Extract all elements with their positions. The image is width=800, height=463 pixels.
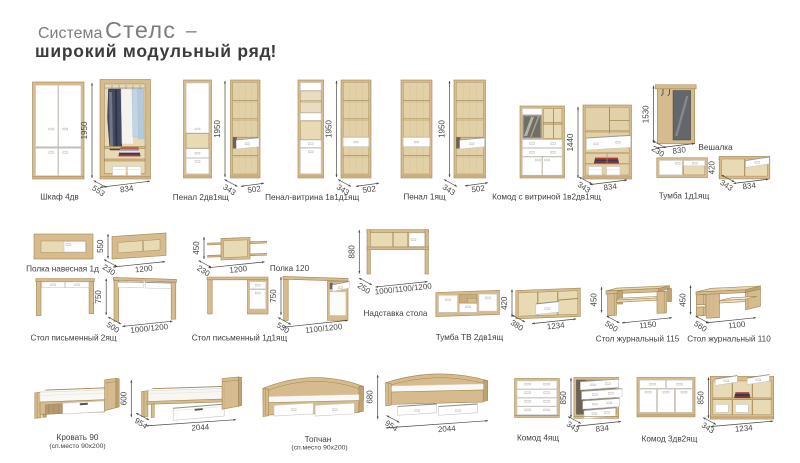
svg-text:834: 834 <box>742 181 757 192</box>
svg-text:954: 954 <box>133 416 150 431</box>
svg-text:450: 450 <box>679 293 688 307</box>
svg-text:880: 880 <box>347 245 356 259</box>
svg-text:834: 834 <box>120 184 135 195</box>
svg-text:2044: 2044 <box>191 422 210 432</box>
svg-text:502: 502 <box>471 184 486 195</box>
svg-text:Надставка стола: Надставка стола <box>364 309 428 318</box>
svg-text:680: 680 <box>366 390 375 404</box>
svg-text:1234: 1234 <box>546 321 565 332</box>
svg-text:Пенал 1ящ: Пенал 1ящ <box>403 193 446 202</box>
svg-text:!: ! <box>271 41 277 61</box>
svg-text:Топчан: Топчан <box>305 435 332 444</box>
svg-text:1950: 1950 <box>213 120 222 138</box>
svg-text:550: 550 <box>96 239 105 253</box>
svg-text:560: 560 <box>692 319 709 334</box>
svg-text:Комод 3дв2ящ: Комод 3дв2ящ <box>642 435 698 444</box>
svg-text:380: 380 <box>509 318 526 333</box>
svg-text:1100: 1100 <box>728 320 747 331</box>
svg-text:(сп.место 90х200): (сп.место 90х200) <box>291 445 347 452</box>
svg-text:230: 230 <box>101 262 118 277</box>
svg-text:Вешалка: Вешалка <box>698 143 733 152</box>
svg-text:Комод 4ящ: Комод 4ящ <box>517 434 559 443</box>
svg-text:1234: 1234 <box>735 423 754 434</box>
svg-text:834: 834 <box>595 423 610 433</box>
svg-text:420: 420 <box>500 296 509 310</box>
svg-text:560: 560 <box>603 319 620 334</box>
svg-text:2044: 2044 <box>438 424 457 434</box>
svg-text:1950: 1950 <box>325 120 334 138</box>
svg-text:850: 850 <box>697 391 706 405</box>
svg-text:834: 834 <box>603 182 618 193</box>
svg-text:Стол письменный 1д1ящ: Стол письменный 1д1ящ <box>192 334 288 343</box>
svg-text:Стол журнальный 110: Стол журнальный 110 <box>687 335 771 344</box>
svg-text:Стелс: Стелс <box>105 17 176 43</box>
svg-text:1530: 1530 <box>642 105 651 123</box>
svg-text:450: 450 <box>192 241 201 255</box>
svg-text:1000/1200: 1000/1200 <box>130 322 169 335</box>
svg-text:1000/1100/1200: 1000/1100/1200 <box>374 281 432 296</box>
svg-text:Пенал 2дв1ящ: Пенал 2дв1ящ <box>173 193 229 202</box>
svg-text:1440: 1440 <box>566 133 575 151</box>
svg-text:420: 420 <box>708 160 717 174</box>
svg-text:1200: 1200 <box>229 264 248 275</box>
svg-text:250: 250 <box>356 281 373 296</box>
svg-text:750: 750 <box>269 289 278 303</box>
svg-text:Система: Система <box>38 25 103 42</box>
svg-text:Стол письменный 2ящ: Стол письменный 2ящ <box>30 334 116 343</box>
svg-text:850: 850 <box>559 391 568 405</box>
svg-text:750: 750 <box>94 290 103 304</box>
svg-text:Полка 120: Полка 120 <box>270 264 310 273</box>
svg-text:553: 553 <box>90 183 107 198</box>
svg-text:–: – <box>186 21 197 42</box>
svg-text:Стол журнальный 115: Стол журнальный 115 <box>596 335 680 344</box>
svg-text:Тумба ТВ 2дв1ящ: Тумба ТВ 2дв1ящ <box>436 333 504 342</box>
svg-text:Шкаф 4дв: Шкаф 4дв <box>40 193 79 202</box>
svg-text:230: 230 <box>650 144 667 159</box>
svg-text:Комод с витриной 1в2дв1ящ: Комод с витриной 1в2дв1ящ <box>492 193 601 202</box>
svg-text:450: 450 <box>590 293 599 307</box>
svg-text:1150: 1150 <box>639 320 658 331</box>
svg-text:343: 343 <box>700 420 717 435</box>
svg-text:954: 954 <box>383 418 400 433</box>
svg-text:230: 230 <box>195 263 212 278</box>
svg-text:1950: 1950 <box>80 121 89 139</box>
svg-text:600: 600 <box>119 391 128 405</box>
svg-text:(сп.место 90х200): (сп.место 90х200) <box>49 443 105 450</box>
svg-text:1100/1200: 1100/1200 <box>305 322 344 335</box>
svg-text:502: 502 <box>362 184 377 195</box>
svg-text:343: 343 <box>565 419 582 434</box>
svg-text:343: 343 <box>718 178 735 193</box>
svg-text:1950: 1950 <box>438 120 447 138</box>
svg-text:502: 502 <box>247 184 262 195</box>
svg-text:1200: 1200 <box>134 264 153 275</box>
svg-text:широкий модульный ряд: широкий модульный ряд <box>35 41 271 61</box>
svg-text:Кровать 90: Кровать 90 <box>57 433 99 442</box>
svg-text:Тумба 1д1ящ: Тумба 1д1ящ <box>659 192 710 201</box>
svg-text:830: 830 <box>672 145 687 156</box>
svg-text:Пенал-витрина 1в1д1ящ: Пенал-витрина 1в1д1ящ <box>265 193 359 202</box>
svg-text:Полка навесная 1д: Полка навесная 1д <box>26 265 99 274</box>
